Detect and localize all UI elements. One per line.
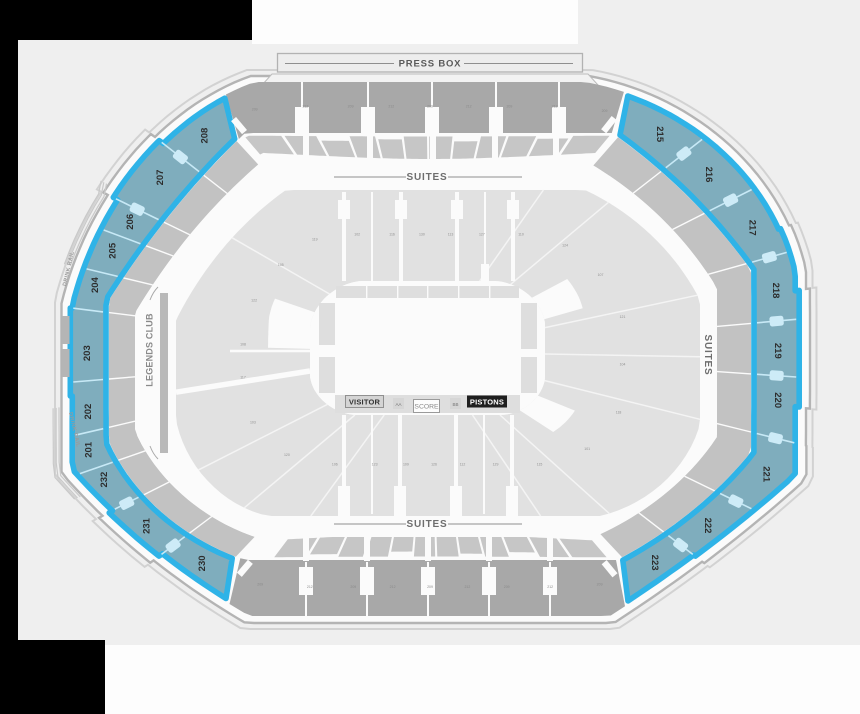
svg-text:122: 122 — [251, 299, 257, 303]
svg-text:SUITES: SUITES — [702, 335, 713, 376]
svg-text:118: 118 — [616, 410, 622, 414]
svg-text:124: 124 — [562, 243, 568, 247]
svg-text:218: 218 — [770, 283, 781, 299]
svg-text:209: 209 — [257, 583, 263, 587]
svg-text:209: 209 — [597, 582, 603, 586]
svg-text:209: 209 — [504, 585, 510, 589]
svg-text:203: 203 — [82, 345, 93, 361]
svg-text:101: 101 — [584, 447, 590, 451]
svg-text:219: 219 — [772, 343, 783, 359]
svg-text:102: 102 — [354, 233, 360, 237]
svg-text:SUITES: SUITES — [407, 519, 448, 530]
svg-text:209: 209 — [506, 105, 512, 109]
svg-text:117: 117 — [240, 375, 246, 379]
svg-text:121: 121 — [620, 315, 626, 319]
svg-text:109: 109 — [403, 463, 409, 467]
svg-text:204: 204 — [90, 276, 101, 293]
svg-text:212: 212 — [307, 585, 313, 589]
svg-text:216: 216 — [703, 167, 714, 183]
svg-text:202: 202 — [83, 404, 94, 420]
svg-text:105: 105 — [278, 263, 284, 267]
svg-text:VISITOR: VISITOR — [349, 397, 381, 406]
svg-text:BB: BB — [452, 402, 458, 407]
svg-text:PRESS BOX: PRESS BOX — [399, 59, 462, 70]
svg-text:212: 212 — [552, 105, 558, 109]
svg-text:104: 104 — [620, 363, 626, 367]
svg-text:209: 209 — [427, 585, 433, 589]
svg-text:230: 230 — [197, 555, 208, 571]
svg-text:129: 129 — [493, 463, 499, 467]
svg-text:221: 221 — [760, 466, 771, 483]
svg-text:LEGENDS CLUB: LEGENDS CLUB — [145, 313, 155, 387]
svg-text:232: 232 — [99, 472, 110, 488]
svg-text:223: 223 — [649, 555, 660, 571]
svg-text:110: 110 — [518, 233, 524, 237]
svg-text:222: 222 — [702, 518, 713, 534]
svg-text:120: 120 — [284, 453, 290, 457]
svg-text:119: 119 — [312, 238, 318, 242]
svg-text:116: 116 — [389, 233, 395, 237]
svg-text:209: 209 — [252, 108, 258, 112]
svg-text:209: 209 — [427, 105, 433, 109]
svg-text:209: 209 — [350, 585, 356, 589]
svg-text:106: 106 — [332, 463, 338, 467]
svg-text:113: 113 — [448, 233, 454, 237]
svg-text:215: 215 — [654, 126, 665, 143]
svg-text:205: 205 — [107, 242, 118, 259]
svg-text:212: 212 — [388, 105, 394, 109]
svg-text:209: 209 — [348, 105, 354, 109]
svg-text:231: 231 — [142, 517, 153, 534]
svg-text:SUITES: SUITES — [407, 172, 448, 183]
svg-text:127: 127 — [479, 233, 485, 237]
svg-text:126: 126 — [431, 463, 437, 467]
svg-text:212: 212 — [302, 105, 308, 109]
svg-text:208: 208 — [200, 128, 211, 144]
svg-text:212: 212 — [466, 105, 472, 109]
svg-text:212: 212 — [464, 585, 470, 589]
svg-text:206: 206 — [125, 214, 136, 230]
svg-text:212: 212 — [390, 585, 396, 589]
svg-text:115: 115 — [537, 463, 543, 467]
svg-text:123: 123 — [372, 463, 378, 467]
svg-text:209: 209 — [602, 109, 608, 113]
svg-text:201: 201 — [83, 441, 94, 458]
svg-text:112: 112 — [460, 463, 466, 467]
svg-text:212: 212 — [547, 585, 553, 589]
svg-text:SCORE: SCORE — [414, 404, 439, 411]
svg-text:130: 130 — [419, 233, 425, 237]
svg-text:AA: AA — [395, 402, 401, 407]
svg-text:PISTONS: PISTONS — [470, 397, 504, 406]
svg-text:103: 103 — [250, 421, 256, 425]
svg-text:108: 108 — [240, 343, 246, 347]
svg-text:107: 107 — [598, 273, 604, 277]
svg-text:217: 217 — [747, 220, 758, 236]
svg-text:220: 220 — [772, 392, 783, 408]
svg-text:207: 207 — [155, 170, 166, 186]
